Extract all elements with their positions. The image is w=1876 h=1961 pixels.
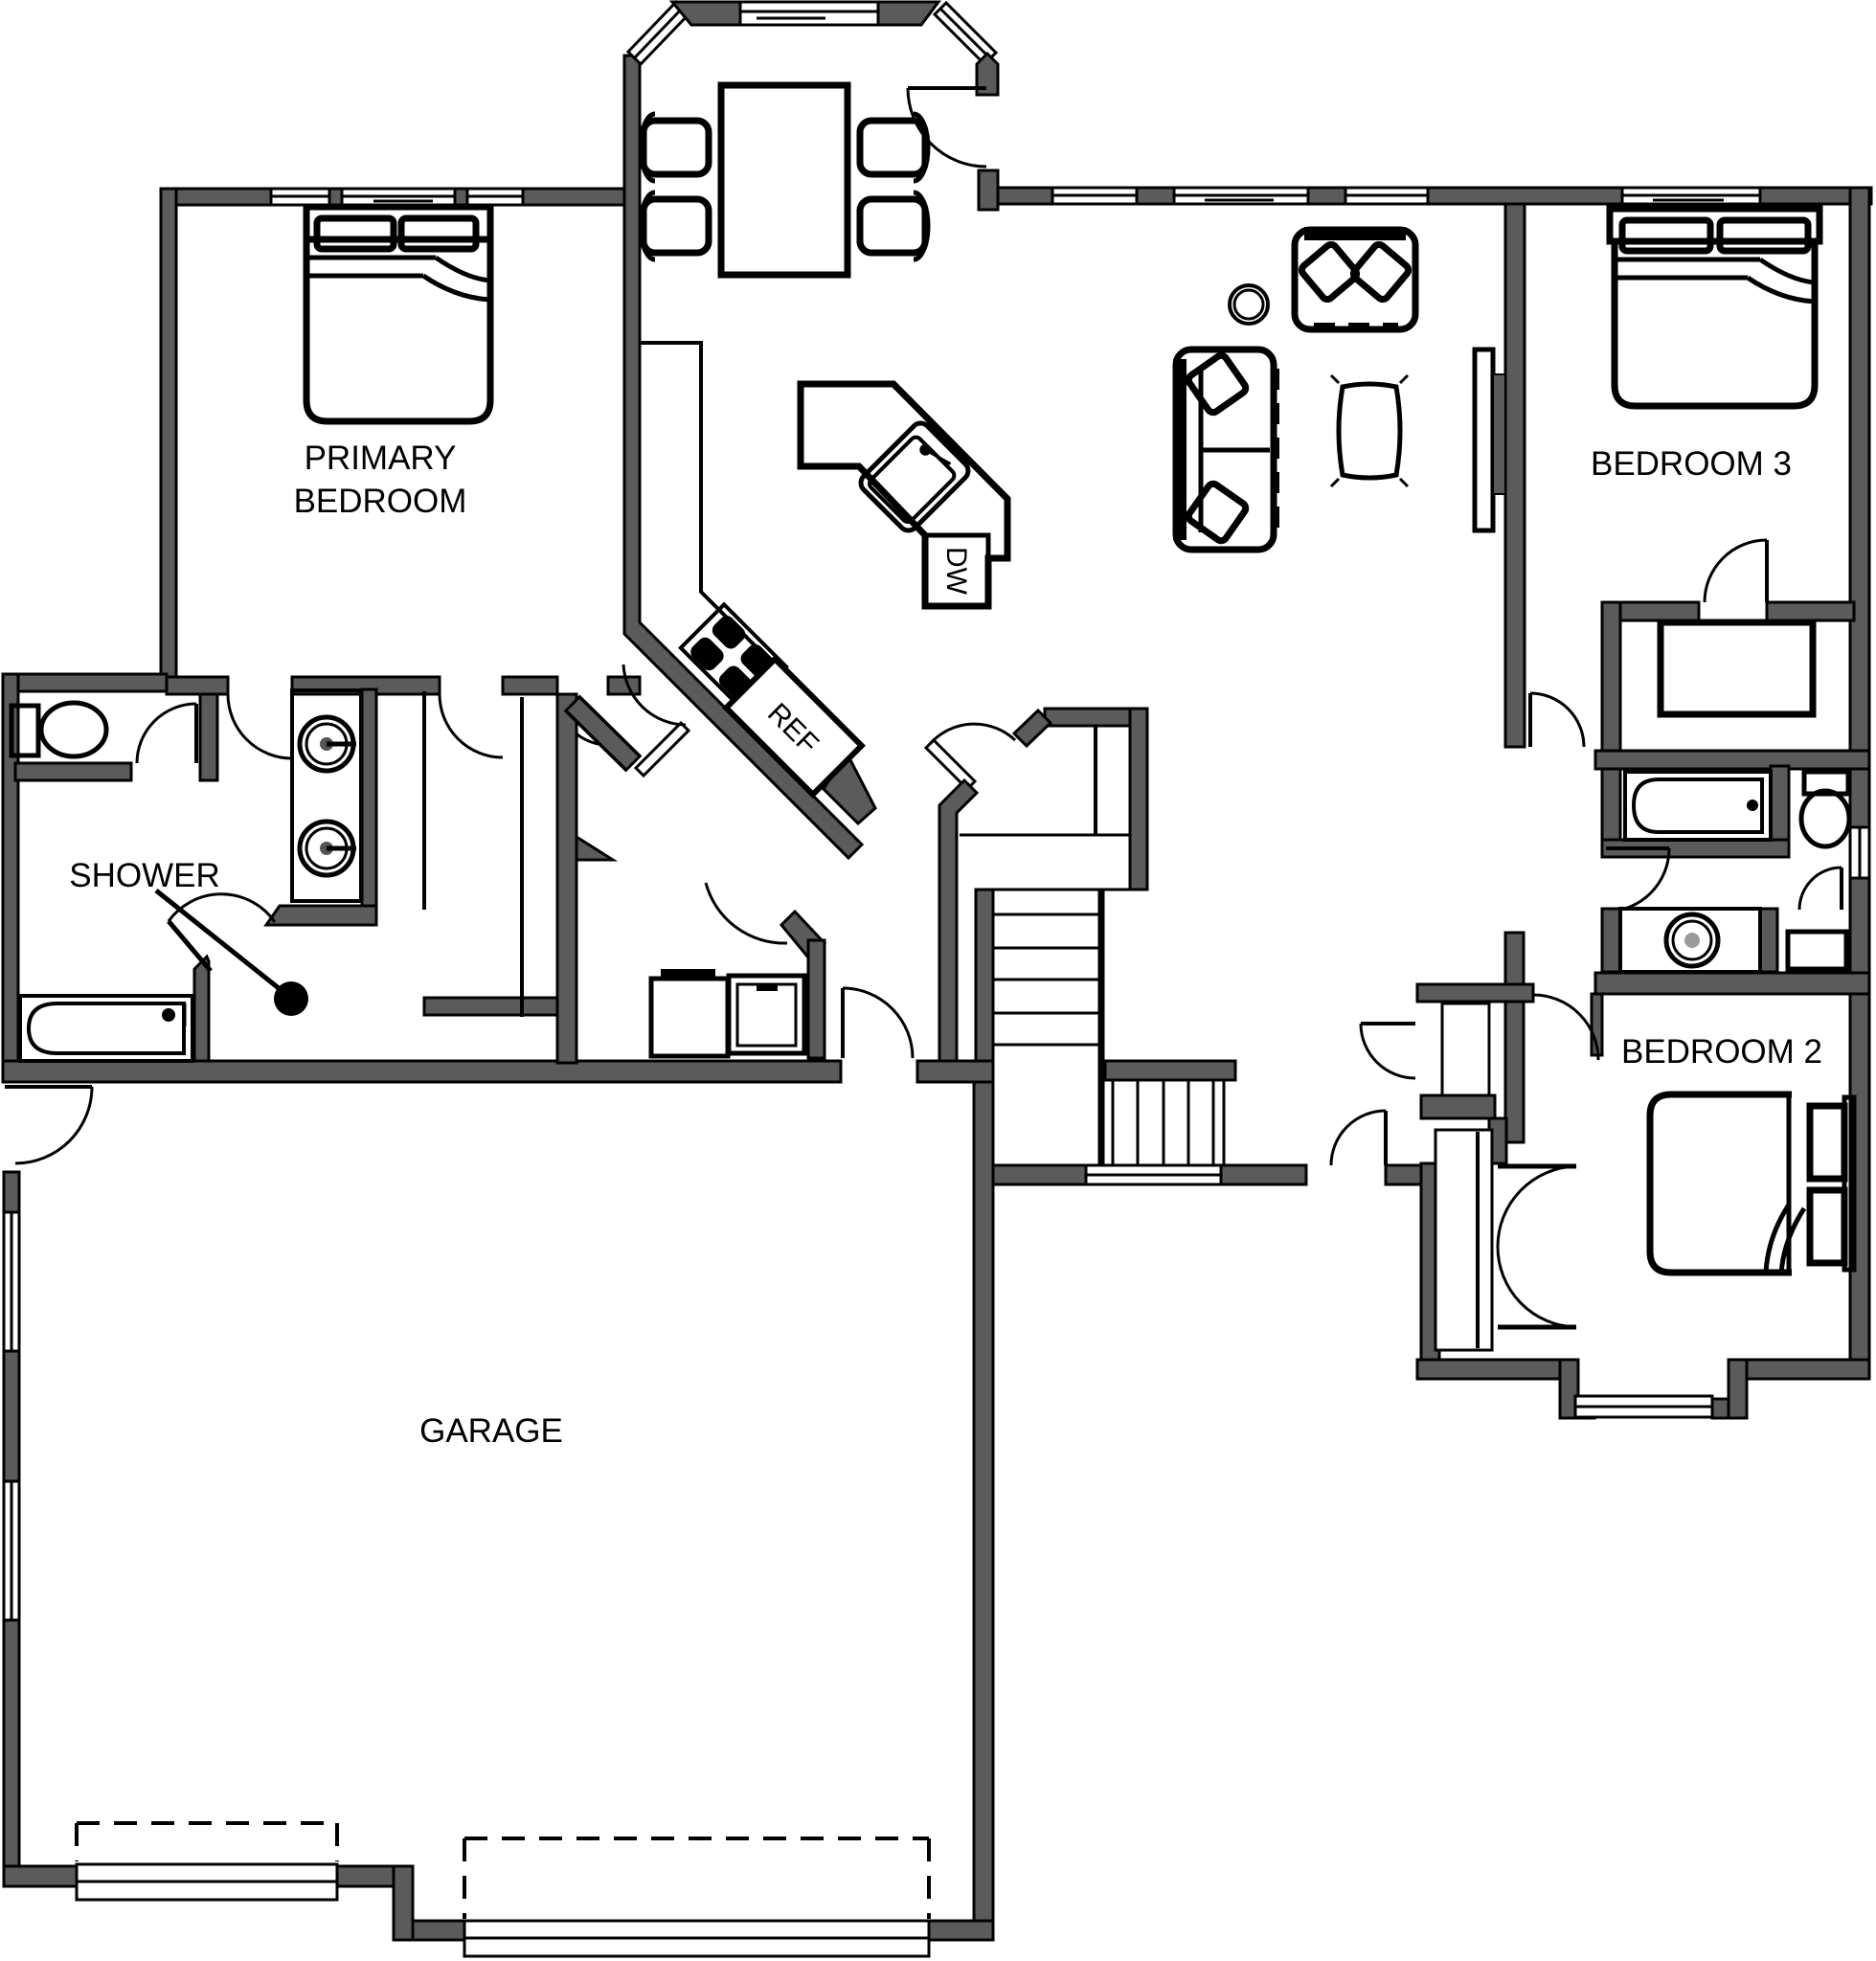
svg-text:PRIMARY: PRIMARY bbox=[305, 440, 457, 477]
svg-text:BEDROOM: BEDROOM bbox=[294, 483, 467, 520]
svg-text:BEDROOM 2: BEDROOM 2 bbox=[1621, 1033, 1822, 1071]
svg-text:SHOWER: SHOWER bbox=[69, 857, 220, 894]
svg-text:GARAGE: GARAGE bbox=[419, 1412, 563, 1450]
svg-text:BEDROOM 3: BEDROOM 3 bbox=[1591, 445, 1792, 483]
svg-text:DW: DW bbox=[940, 547, 972, 596]
